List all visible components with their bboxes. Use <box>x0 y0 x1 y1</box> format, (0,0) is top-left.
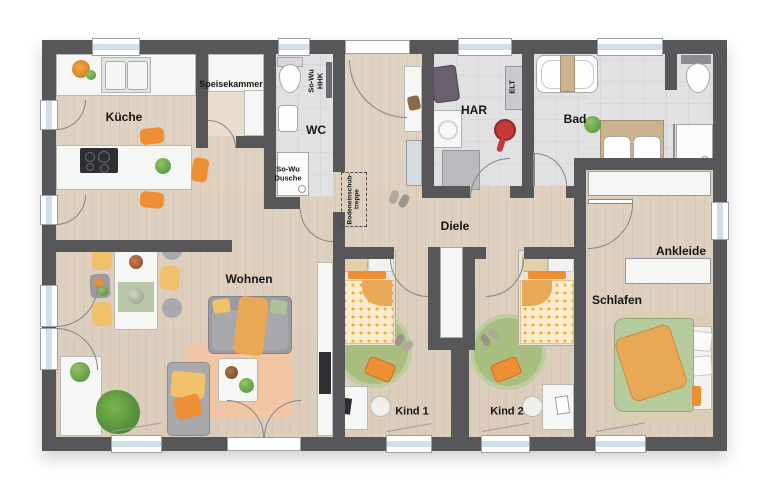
wall <box>333 212 345 437</box>
window-har-top <box>458 38 512 56</box>
window-schlafen-bottom <box>595 435 646 453</box>
wall <box>345 247 394 259</box>
wall <box>428 247 440 350</box>
room-label-ankleide: Ankleide <box>656 245 706 259</box>
wc-sink <box>278 105 298 132</box>
tv-sideboard <box>317 262 333 436</box>
sofa-pillow-yellow <box>212 298 231 314</box>
dining-chair-3 <box>91 301 113 327</box>
bad-plant <box>584 116 601 133</box>
window-bad-top <box>597 38 663 56</box>
kitchen-chair-bottom <box>139 191 164 209</box>
room-label-bad: Bad <box>564 113 587 127</box>
window-living-bottom <box>111 435 162 453</box>
label-so-wu-dusche: So-Wu Dusche <box>274 165 301 182</box>
wall <box>422 186 470 198</box>
room-label-wohnen: Wohnen <box>225 273 272 287</box>
room-label-har: HAR <box>461 104 487 118</box>
dining-chair-4 <box>159 265 181 291</box>
sink-basin-right <box>127 61 148 90</box>
sink-basin-left <box>105 61 126 90</box>
wall <box>665 54 677 90</box>
wall <box>264 54 276 209</box>
window-wc-top <box>278 38 310 56</box>
burner-4 <box>100 164 109 173</box>
window-kid1-bottom <box>386 435 432 453</box>
wc-radiator <box>326 62 332 98</box>
floor-plan: Küche Speisekammer WC So-Wu HHK So-Wu Du… <box>0 0 775 497</box>
wardrobe-bottom <box>625 258 711 284</box>
kid2-chair <box>522 396 543 417</box>
washer-door <box>438 120 458 140</box>
room-label-kueche: Küche <box>106 111 143 125</box>
kid1-chair <box>370 396 391 417</box>
wall <box>56 240 232 252</box>
burner-1 <box>85 152 95 162</box>
kid2-accent-bar <box>528 271 566 279</box>
terrace-door <box>227 437 301 451</box>
flower-leaves <box>86 70 96 80</box>
label-elt: ELT <box>509 80 518 94</box>
chair-deco-leaf <box>98 286 108 296</box>
hall-bag <box>407 95 422 111</box>
burner-2 <box>98 151 110 163</box>
wall <box>524 247 574 259</box>
kid2-monitor <box>555 395 570 415</box>
tv <box>319 352 331 394</box>
kid1-accent-bar <box>348 271 386 279</box>
wall <box>586 158 713 170</box>
burner-3 <box>86 163 94 171</box>
wall <box>451 350 469 437</box>
front-door <box>345 40 410 54</box>
window-kid2-bottom <box>481 435 530 453</box>
label-so-wu-hhk: So-Wu HHK <box>307 69 324 93</box>
pantry-shelf-right <box>244 90 264 136</box>
room-label-wc: WC <box>306 124 326 138</box>
vacuum <box>494 119 516 141</box>
dining-stool-2 <box>162 298 182 318</box>
window-kitchen-top <box>92 38 140 56</box>
room-label-speisekammer: Speisekammer <box>199 79 263 89</box>
shower-drain <box>298 185 306 193</box>
label-loft-ladder: Bodeneinschub- treppe <box>347 174 362 225</box>
room-label-diele: Diele <box>441 220 470 234</box>
hall-closet <box>440 247 463 338</box>
table-plant <box>155 158 171 174</box>
bad-door-leaf <box>533 153 535 186</box>
room-label-schlafen: Schlafen <box>592 294 642 308</box>
table-bouquet <box>128 288 144 304</box>
bath-caddy <box>560 55 575 92</box>
wall <box>574 158 586 437</box>
coffee-plant <box>239 378 254 393</box>
wall <box>276 197 300 209</box>
wardrobe-top <box>588 171 711 196</box>
sofa-pillow-green <box>269 299 288 316</box>
decor-bowl <box>129 255 143 269</box>
kitchen-island <box>56 145 192 190</box>
window-ankleide-right <box>711 202 729 240</box>
coffee-bowl <box>225 366 238 379</box>
bed-throw-orange <box>692 386 701 406</box>
wall <box>428 338 475 350</box>
kitchen-chair-top <box>139 127 165 145</box>
laundry-basket <box>430 64 461 103</box>
room-label-kind1: Kind 1 <box>395 406 429 419</box>
wall <box>475 247 486 259</box>
kitchen-chair-right <box>190 157 209 183</box>
hall-mirror <box>406 140 422 186</box>
wall <box>196 54 208 148</box>
wall <box>333 54 345 172</box>
wall <box>422 54 434 198</box>
room-label-kind2: Kind 2 <box>490 406 524 419</box>
wall <box>463 247 475 350</box>
